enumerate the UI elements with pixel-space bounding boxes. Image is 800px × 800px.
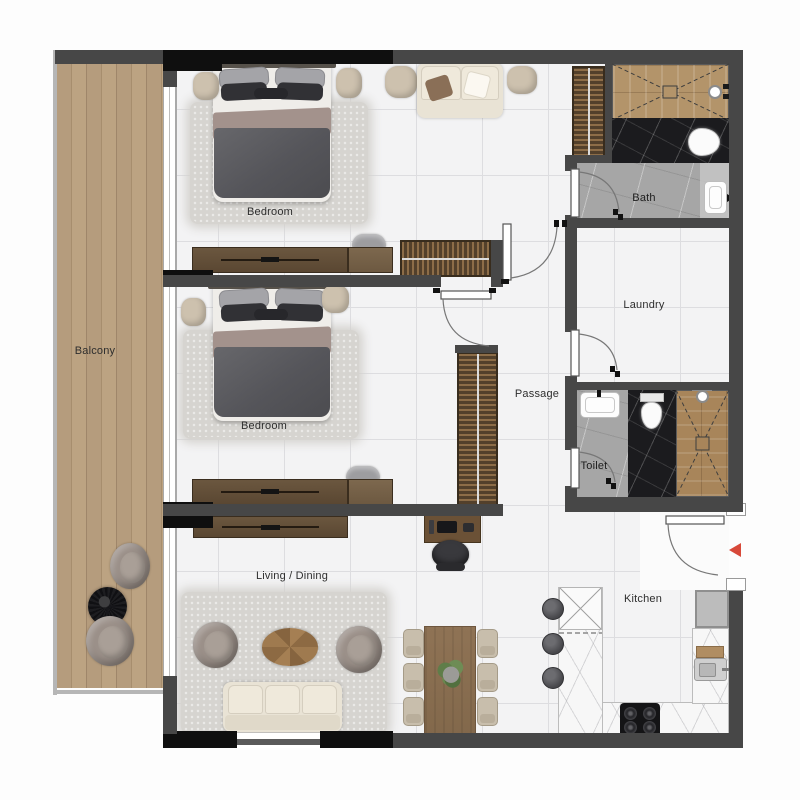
- bar-stool: [542, 667, 564, 689]
- wall-accent: [163, 64, 222, 71]
- room-label-bedroom-top: Bedroom: [247, 206, 293, 218]
- sofa-back: [225, 715, 340, 730]
- burner: [624, 707, 637, 720]
- bed-pillow: [254, 88, 288, 99]
- wall-right-upper: [729, 50, 743, 507]
- entrance-arrow-icon: [729, 543, 741, 557]
- toilet-shower-floor: [676, 390, 729, 497]
- shower-head-icon: [708, 85, 722, 99]
- sofa-cushion: [228, 685, 263, 714]
- dining-chair: [403, 663, 424, 692]
- cutting-board: [696, 646, 724, 658]
- wall-bath-laundry: [565, 218, 743, 228]
- living-window: [237, 733, 320, 748]
- wall-stub: [455, 345, 498, 353]
- wall-top-accent: [163, 50, 393, 64]
- lounge-pouf: [507, 66, 537, 94]
- sofa: [223, 682, 342, 732]
- balcony-chair: [86, 616, 134, 666]
- desk: [424, 514, 481, 543]
- hall-wardrobe: [572, 66, 605, 158]
- balcony-outer-wall: [53, 690, 165, 694]
- passage-wardrobe: [457, 352, 498, 508]
- armchair: [336, 626, 382, 673]
- lounge-pouf: [385, 66, 417, 98]
- wall-bedroom1-bedroom2: [163, 275, 441, 287]
- wall-stub: [491, 240, 503, 287]
- wall-laundry-toilet: [565, 382, 743, 390]
- bedroom1-dresser-side: [348, 247, 393, 273]
- vanity-chair: [352, 234, 386, 248]
- armchair: [193, 622, 238, 668]
- wall-segment: [163, 676, 177, 734]
- desk-item: [463, 523, 474, 532]
- wall-wardrobe-bath: [605, 64, 612, 157]
- bedroom2-dresser: [192, 479, 348, 505]
- wall-bottom-accent: [320, 731, 393, 748]
- fridge: [695, 590, 729, 628]
- bedroom1-bed: [213, 62, 331, 202]
- table-plant: [437, 656, 465, 692]
- bath-sink: [704, 181, 727, 214]
- toilet-tank: [640, 393, 664, 402]
- balcony-chair: [110, 543, 150, 589]
- wall-segment: [163, 71, 177, 87]
- sofa-cushion: [302, 685, 337, 714]
- room-label-passage: Passage: [515, 388, 559, 400]
- entrance-door-frame: [726, 578, 746, 591]
- wall-toilet-kitchen: [565, 497, 743, 512]
- bedside-pouf: [336, 68, 362, 98]
- desk-item: [429, 520, 434, 534]
- kitchen-cabinet: [559, 587, 602, 630]
- wall-passage-laundry: [565, 215, 577, 332]
- sink-basin: [699, 663, 716, 677]
- kitchen-sink: [694, 658, 727, 681]
- wall-segment: [565, 486, 577, 497]
- wall-passage-bath: [565, 155, 577, 171]
- dining-chair: [477, 629, 498, 658]
- dining-chair: [403, 629, 424, 658]
- bar-stool: [542, 598, 564, 620]
- room-label-balcony: Balcony: [75, 345, 116, 357]
- bar-stool: [542, 633, 564, 655]
- bedroom2-dresser-side: [348, 479, 393, 505]
- dining-chair: [477, 663, 498, 692]
- bedroom1-wardrobe: [400, 240, 491, 277]
- dining-chair: [477, 697, 498, 726]
- room-label-living-dining: Living / Dining: [256, 570, 328, 582]
- floor-plan: Balcony Bedroom Bedroom Living / Dining …: [0, 0, 800, 800]
- room-label-toilet: Toilet: [581, 460, 608, 472]
- wall-right-lower: [729, 590, 743, 748]
- lounge-loveseat: [417, 63, 503, 118]
- dining-chair: [403, 697, 424, 726]
- coffee-table: [262, 628, 318, 666]
- sofa-cushion: [265, 685, 300, 714]
- room-label-bedroom-mid: Bedroom: [241, 420, 287, 432]
- tv-console: [193, 516, 348, 538]
- bed-blanket: [214, 347, 330, 417]
- bedroom2-bed: [213, 283, 331, 421]
- bedside-pouf: [181, 298, 206, 326]
- bedside-pouf: [322, 285, 349, 313]
- entry-floor: [640, 512, 729, 590]
- balcony-glazing: [163, 64, 177, 734]
- burner: [643, 707, 656, 720]
- room-label-kitchen: Kitchen: [624, 593, 662, 605]
- room-label-bath: Bath: [632, 192, 655, 204]
- vanity-chair: [346, 466, 380, 480]
- shower-head-icon: [696, 390, 709, 403]
- bedroom1-dresser: [192, 247, 348, 273]
- wall-top: [55, 50, 743, 64]
- room-label-laundry: Laundry: [623, 299, 664, 311]
- bed-pillow: [254, 309, 288, 320]
- laptop: [437, 521, 457, 533]
- bedside-pouf: [193, 72, 219, 100]
- office-chair: [432, 540, 469, 568]
- bed-blanket: [214, 128, 330, 198]
- wall-bedroom2-living: [163, 504, 503, 516]
